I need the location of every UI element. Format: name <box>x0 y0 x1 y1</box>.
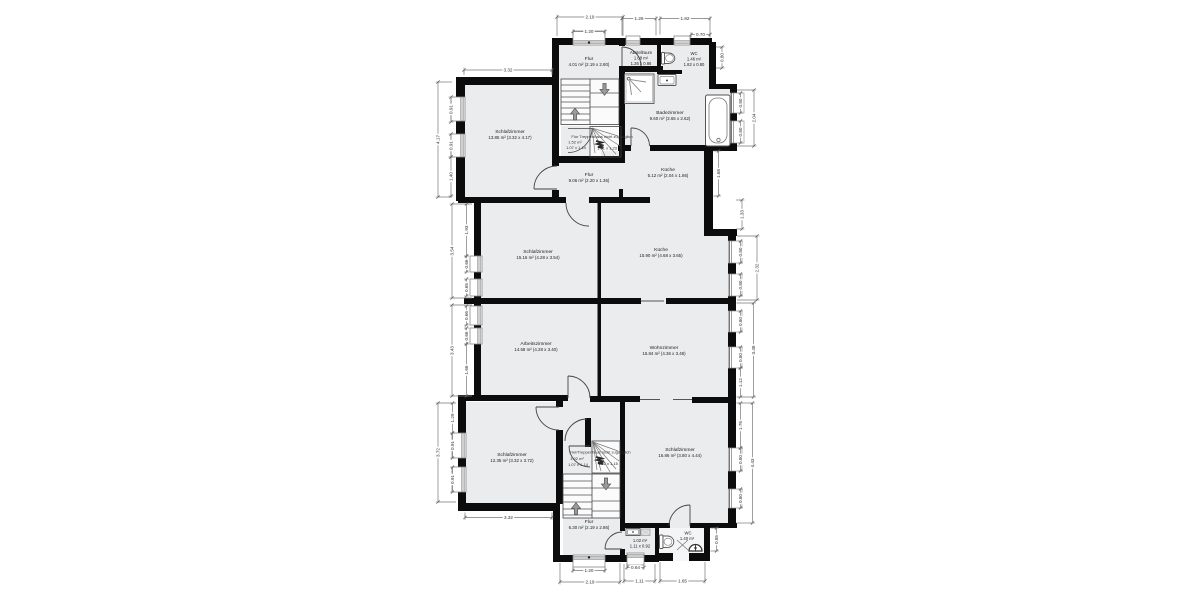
svg-text:4.01 m² (2.19 x 2.80): 4.01 m² (2.19 x 2.80) <box>569 62 610 67</box>
svg-text:WC: WC <box>691 51 698 56</box>
svg-text:1.01 x 1.23: 1.01 x 1.23 <box>597 146 618 151</box>
svg-text:0.70: 0.70 <box>696 32 705 37</box>
svg-text:0.80: 0.80 <box>738 98 743 107</box>
svg-text:13.85 m² (3.32 x 4.17): 13.85 m² (3.32 x 4.17) <box>488 135 532 140</box>
svg-text:15.16 m² (4.28 x 3.54): 15.16 m² (4.28 x 3.54) <box>516 255 560 260</box>
svg-text:9.60 m² (3.65 x 2.62): 9.60 m² (3.65 x 2.62) <box>650 116 691 121</box>
svg-text:1.52 m²: 1.52 m² <box>568 140 582 145</box>
svg-text:0.91: 0.91 <box>450 475 455 484</box>
svg-text:0.66: 0.66 <box>464 311 469 320</box>
svg-text:1.40: 1.40 <box>449 172 454 181</box>
svg-text:0.80: 0.80 <box>738 455 743 464</box>
svg-text:3.43: 3.43 <box>450 346 455 355</box>
svg-text:0.80: 0.80 <box>738 353 743 362</box>
svg-text:2.19: 2.19 <box>586 580 595 585</box>
svg-text:0.80: 0.80 <box>738 317 743 326</box>
svg-text:1.82: 1.82 <box>681 16 690 21</box>
svg-text:3.48: 3.48 <box>751 345 756 354</box>
svg-text:1.82 x 0.80: 1.82 x 0.80 <box>684 62 705 67</box>
svg-text:WC: WC <box>685 531 692 536</box>
svg-text:0.91: 0.91 <box>450 441 455 450</box>
svg-text:2.04: 2.04 <box>752 113 757 122</box>
svg-text:4.17: 4.17 <box>436 135 441 144</box>
svg-text:3.32: 3.32 <box>504 68 513 73</box>
svg-text:5.12 m² (2.04 x 1.86): 5.12 m² (2.04 x 1.86) <box>648 173 689 178</box>
svg-text:0.66: 0.66 <box>464 331 469 340</box>
svg-text:0.91: 0.91 <box>449 105 454 114</box>
svg-text:1.46 m²: 1.46 m² <box>687 57 702 62</box>
svg-text:Abstellraum: Abstellraum <box>630 50 653 55</box>
svg-text:1.33: 1.33 <box>740 210 745 219</box>
svg-text:4.43: 4.43 <box>750 458 755 467</box>
svg-text:16.86 m² (3.80 x 4.44): 16.86 m² (3.80 x 4.44) <box>658 453 702 458</box>
svg-text:3.54: 3.54 <box>450 246 455 255</box>
svg-text:1.02 m²: 1.02 m² <box>570 456 584 461</box>
svg-text:15.90 m² (4.68 x 3.65): 15.90 m² (4.68 x 3.65) <box>639 253 683 258</box>
svg-text:9.06 m² (2.20 x 1.36): 9.06 m² (2.20 x 1.36) <box>569 178 610 183</box>
svg-text:1.20: 1.20 <box>585 568 594 573</box>
svg-text:1.29: 1.29 <box>450 413 455 422</box>
svg-text:1.66: 1.66 <box>464 365 469 374</box>
svg-text:15.84 m² (4.36 x 3.48): 15.84 m² (4.36 x 3.48) <box>642 351 686 356</box>
svg-text:1.07 x 1.14: 1.07 x 1.14 <box>568 462 589 467</box>
svg-text:1.68: 1.68 <box>716 169 721 178</box>
svg-text:1.08 m²: 1.08 m² <box>634 56 649 61</box>
svg-text:0.80: 0.80 <box>720 53 725 62</box>
svg-text:0.80: 0.80 <box>738 247 743 256</box>
svg-text:6.30 m² (2.19 x 2.86): 6.30 m² (2.19 x 2.86) <box>569 525 610 530</box>
svg-text:0.64: 0.64 <box>631 565 640 570</box>
svg-text:3.32: 3.32 <box>504 515 513 520</box>
svg-text:0.80: 0.80 <box>738 280 743 289</box>
svg-text:1.65: 1.65 <box>678 579 687 584</box>
svg-text:1.76: 1.76 <box>738 421 743 430</box>
svg-text:3.72: 3.72 <box>436 448 441 457</box>
svg-text:1.11 x 0.92: 1.11 x 0.92 <box>630 544 651 549</box>
svg-text:1.26: 1.26 <box>635 16 644 21</box>
svg-text:1.93: 1.93 <box>464 225 469 234</box>
svg-text:0.66: 0.66 <box>464 259 469 268</box>
svg-text:2.19: 2.19 <box>586 15 595 20</box>
svg-text:2.32: 2.32 <box>755 263 760 272</box>
svg-text:14.68 m² (4.28 x 3.40): 14.68 m² (4.28 x 3.40) <box>514 347 558 352</box>
svg-text:12.35 m² (3.32 x 3.72): 12.35 m² (3.32 x 3.72) <box>490 458 534 463</box>
svg-text:0.65: 0.65 <box>464 283 469 292</box>
svg-text:1.20: 1.20 <box>585 29 594 34</box>
svg-text:1.07 x 1.14: 1.07 x 1.14 <box>566 145 587 150</box>
svg-text:0.80: 0.80 <box>738 127 743 136</box>
svg-text:1.40 m²: 1.40 m² <box>680 536 695 541</box>
svg-text:Flur/Treppenhaus nicht zugängl: Flur/Treppenhaus nicht zugänglich <box>569 450 630 455</box>
svg-text:0.91: 0.91 <box>449 141 454 150</box>
svg-text:1.02 m²: 1.02 m² <box>633 538 648 543</box>
svg-text:0.85: 0.85 <box>714 535 719 544</box>
svg-text:0.80: 0.80 <box>738 494 743 503</box>
svg-text:1.12: 1.12 <box>738 378 743 387</box>
svg-text:Flur Treppenhaus nicht zugängl: Flur Treppenhaus nicht zugänglich <box>571 134 632 139</box>
svg-text:1.02 x 1.15: 1.02 x 1.15 <box>598 461 619 466</box>
svg-text:1.11: 1.11 <box>635 579 644 584</box>
svg-text:1.26 x 0.86: 1.26 x 0.86 <box>631 61 652 66</box>
